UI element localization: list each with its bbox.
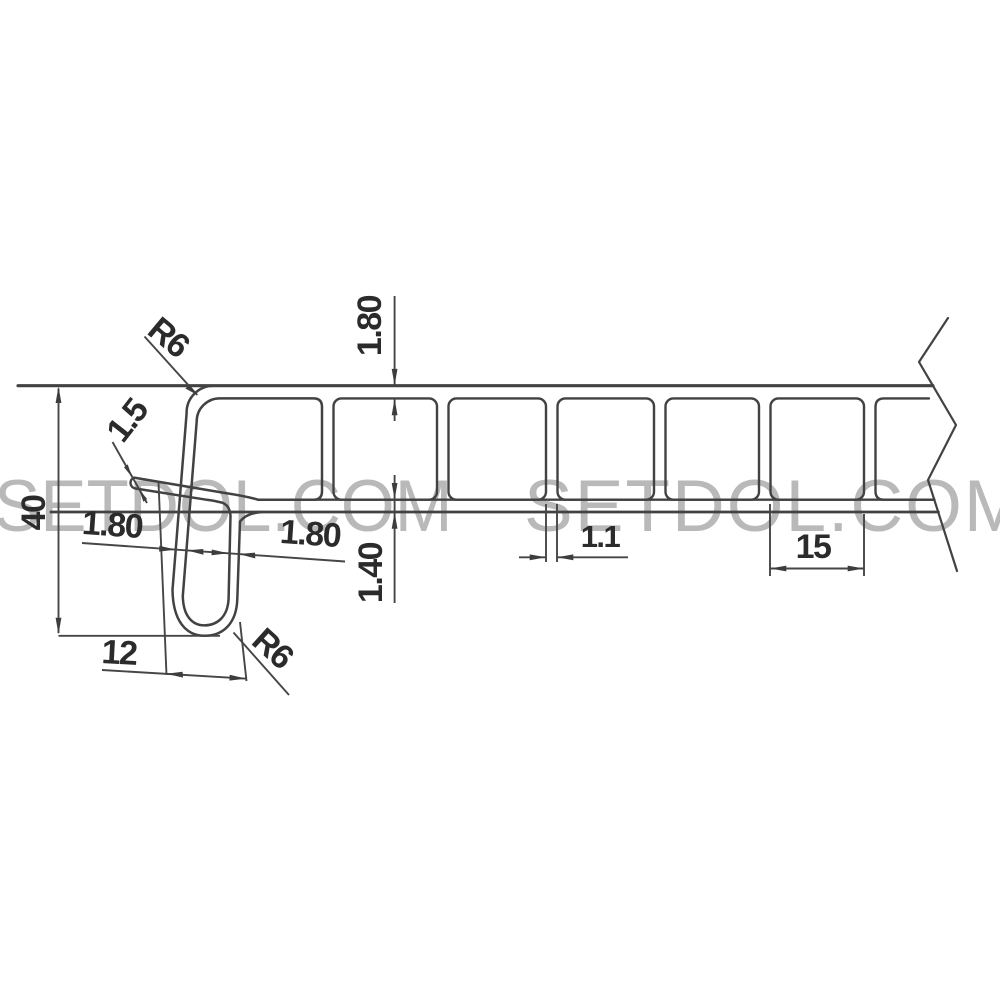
svg-text:40: 40	[15, 495, 53, 530]
svg-text:R6: R6	[245, 621, 301, 677]
svg-text:1.80: 1.80	[279, 513, 342, 555]
svg-text:1.80: 1.80	[351, 295, 389, 356]
svg-text:1.40: 1.40	[352, 542, 390, 603]
svg-text:1.80: 1.80	[81, 504, 144, 546]
svg-text:12: 12	[101, 633, 138, 673]
svg-text:R6: R6	[141, 310, 197, 365]
svg-text:1.5: 1.5	[99, 392, 156, 450]
svg-text:15: 15	[796, 528, 831, 566]
svg-text:1.1: 1.1	[581, 519, 621, 554]
